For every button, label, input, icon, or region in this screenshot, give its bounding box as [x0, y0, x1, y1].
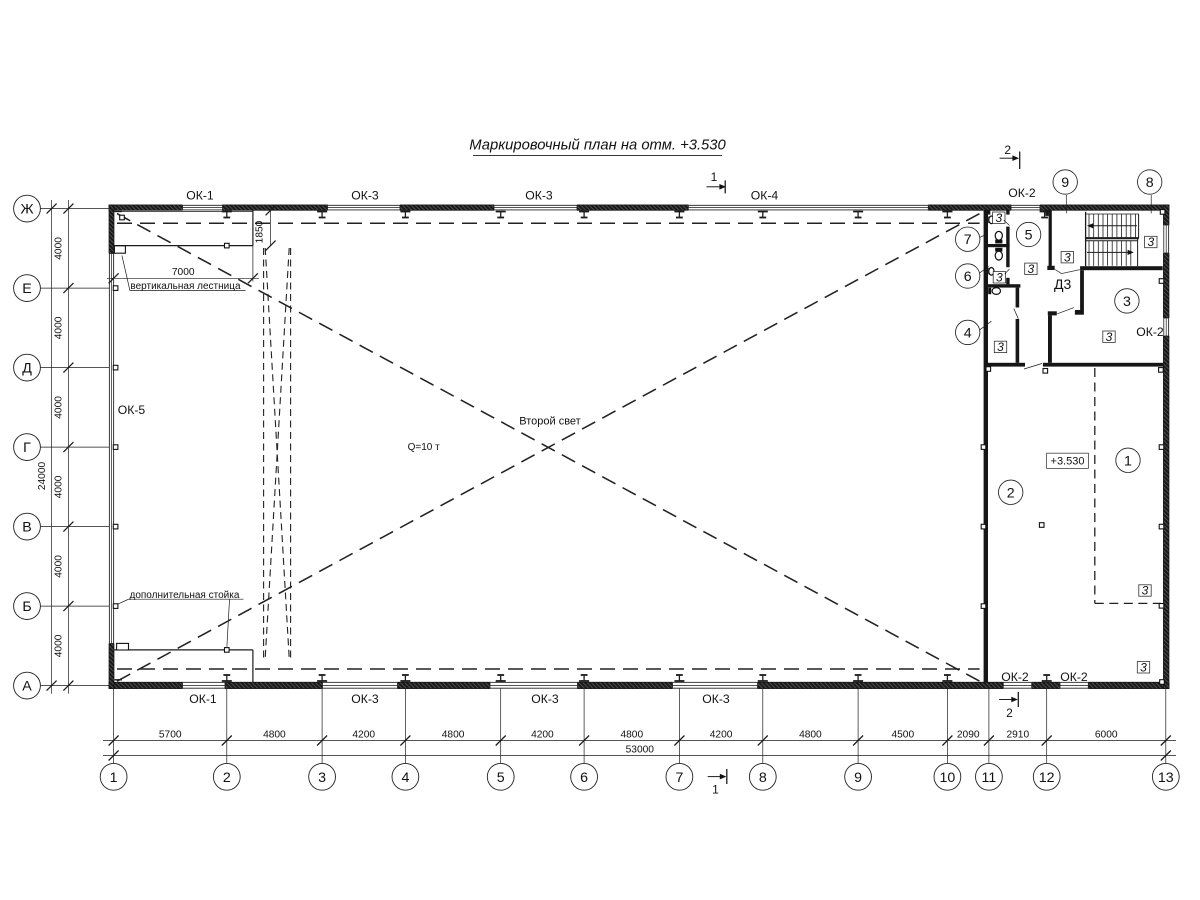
svg-text:ОК-3: ОК-3 [351, 189, 379, 203]
svg-text:5700: 5700 [159, 729, 182, 740]
svg-text:4000: 4000 [54, 634, 65, 657]
svg-text:10: 10 [940, 770, 956, 786]
svg-text:4000: 4000 [54, 396, 65, 419]
svg-text:6: 6 [964, 269, 972, 285]
svg-text:В: В [22, 520, 31, 536]
svg-text:7000: 7000 [172, 267, 195, 278]
svg-text:1: 1 [110, 770, 118, 786]
svg-text:4200: 4200 [352, 729, 375, 740]
svg-text:6000: 6000 [1095, 729, 1118, 740]
svg-text:Д: Д [22, 361, 32, 377]
svg-text:3: 3 [1142, 584, 1149, 598]
svg-text:ОК-2: ОК-2 [1001, 670, 1029, 684]
svg-text:4000: 4000 [54, 237, 65, 260]
svg-text:ОК-1: ОК-1 [186, 189, 214, 203]
svg-text:9: 9 [854, 770, 862, 786]
svg-text:ОК-2: ОК-2 [1136, 325, 1164, 339]
svg-text:3: 3 [1140, 661, 1147, 675]
svg-text:6: 6 [580, 770, 588, 786]
svg-text:4000: 4000 [54, 555, 65, 578]
svg-text:53000: 53000 [626, 744, 655, 755]
svg-text:ОК-3: ОК-3 [351, 692, 379, 706]
svg-text:3: 3 [1106, 330, 1113, 344]
svg-text:1850: 1850 [255, 220, 266, 243]
svg-text:3: 3 [1123, 294, 1131, 310]
svg-text:3: 3 [1064, 250, 1071, 264]
svg-text:4200: 4200 [710, 729, 733, 740]
svg-text:3: 3 [996, 271, 1003, 285]
svg-text:4: 4 [964, 325, 972, 341]
svg-text:2910: 2910 [1006, 729, 1029, 740]
svg-text:1: 1 [712, 783, 719, 797]
svg-text:Г: Г [23, 440, 31, 456]
svg-text:4500: 4500 [891, 729, 914, 740]
svg-text:ОК-2: ОК-2 [1060, 670, 1088, 684]
svg-text:4800: 4800 [263, 729, 286, 740]
svg-text:4800: 4800 [442, 729, 465, 740]
svg-text:Q=10 т: Q=10 т [408, 442, 441, 453]
svg-text:4000: 4000 [54, 475, 65, 498]
svg-text:11: 11 [982, 770, 997, 786]
svg-text:8: 8 [1146, 175, 1154, 191]
svg-text:3: 3 [1028, 262, 1035, 276]
svg-text:2: 2 [1007, 485, 1015, 501]
svg-text:Ж: Ж [20, 202, 33, 218]
svg-text:ОК-2: ОК-2 [1008, 186, 1036, 200]
svg-text:7: 7 [964, 232, 972, 248]
svg-text:ОК-4: ОК-4 [751, 189, 779, 203]
svg-text:ОК-3: ОК-3 [525, 189, 553, 203]
svg-text:3: 3 [995, 211, 1002, 225]
svg-text:4: 4 [401, 770, 409, 786]
svg-text:А: А [22, 679, 32, 695]
svg-text:Б: Б [22, 599, 31, 615]
svg-text:1: 1 [711, 170, 718, 184]
svg-text:3: 3 [318, 770, 326, 786]
svg-text:4200: 4200 [531, 729, 554, 740]
svg-text:3: 3 [1147, 235, 1154, 249]
svg-text:4000: 4000 [54, 316, 65, 339]
svg-text:2: 2 [1004, 143, 1011, 157]
svg-text:12: 12 [1039, 770, 1055, 786]
svg-text:5: 5 [1025, 228, 1033, 244]
svg-text:4800: 4800 [799, 729, 822, 740]
svg-text:Д3: Д3 [1054, 276, 1071, 292]
svg-text:Второй свет: Второй свет [519, 416, 580, 428]
svg-text:4800: 4800 [620, 729, 643, 740]
svg-text:ОК-3: ОК-3 [702, 692, 730, 706]
svg-text:1: 1 [1124, 453, 1132, 469]
svg-text:9: 9 [1061, 175, 1069, 191]
svg-text:2: 2 [1006, 706, 1013, 720]
svg-text:24000: 24000 [37, 462, 48, 491]
svg-text:3: 3 [997, 340, 1004, 354]
svg-text:7: 7 [675, 770, 683, 786]
svg-text:ОК-5: ОК-5 [118, 403, 146, 417]
svg-text:8: 8 [759, 770, 767, 786]
svg-text:ОК-3: ОК-3 [531, 692, 559, 706]
svg-text:+3.530: +3.530 [1051, 456, 1085, 468]
svg-text:2090: 2090 [957, 729, 980, 740]
svg-text:Маркировочный план на отм. +3.: Маркировочный план на отм. +3.530 [469, 137, 726, 153]
svg-text:5: 5 [497, 770, 505, 786]
svg-text:2: 2 [223, 770, 231, 786]
svg-text:Е: Е [22, 281, 31, 297]
svg-text:ОК-1: ОК-1 [189, 692, 217, 706]
svg-text:13: 13 [1158, 770, 1174, 786]
